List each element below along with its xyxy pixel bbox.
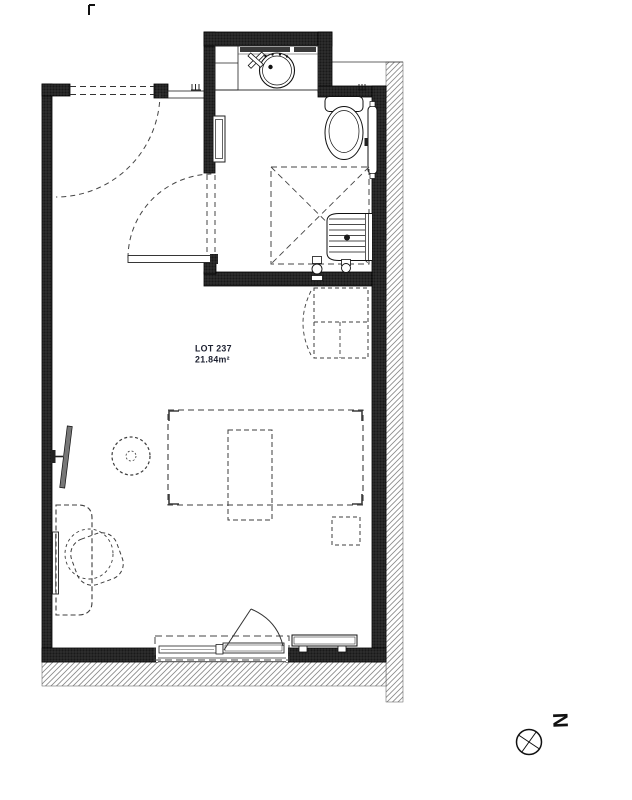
bed-outline: [168, 410, 363, 505]
bathroom-door-leaf: [128, 256, 212, 263]
toilet-icon: [325, 97, 363, 160]
shower-area: [271, 167, 372, 281]
washbasin-icon: [260, 53, 295, 88]
wardrobe-outline: [303, 288, 368, 358]
vanity-unit: [215, 46, 318, 90]
backsplash-strip: [240, 47, 290, 52]
overbed-table-outline: [228, 430, 272, 520]
bathroom-door-hinge: [210, 254, 218, 264]
wall-bottom-left: [42, 648, 158, 662]
wall-top-stub-left: [42, 84, 70, 96]
stool-outline: [112, 437, 150, 475]
entry-opening-dashes: [70, 87, 154, 95]
wall-top-light-segment: [168, 91, 208, 98]
wall-alcove-right: [318, 32, 332, 92]
backsplash-strip: [294, 47, 316, 52]
desk-outline: [56, 505, 92, 615]
floor-plan-page: LOT 237 21.84m² N: [0, 0, 632, 800]
bedside-table-outline: [332, 517, 360, 545]
wall-alcove-top: [204, 32, 332, 46]
area-label: 21.84m²: [195, 355, 230, 365]
north-arrow-label: N: [548, 712, 572, 728]
bathroom-door-swing-arc: [128, 174, 213, 258]
wall-top-stub-mid: [154, 84, 168, 98]
entry-door: [56, 87, 160, 198]
wall-left: [42, 84, 52, 662]
window-casement-leaf: [223, 643, 284, 653]
wall-bathroom-bottom: [204, 272, 372, 286]
desk-chair-outline: [65, 528, 128, 590]
floor-plan-svg: LOT 237 21.84m² N: [0, 0, 632, 800]
window-unit: [155, 609, 289, 662]
window-mullion: [216, 645, 223, 655]
entry-door-swing-arc: [56, 93, 160, 197]
north-compass-icon: N: [517, 712, 572, 754]
lot-annotation: LOT 237 21.84m²: [195, 344, 232, 365]
electrical-panel-icon: [213, 116, 225, 162]
bathroom-door: [128, 174, 218, 264]
shower-bench-icon: [327, 214, 372, 261]
bathroom-door-jamb-dashes: [207, 175, 215, 255]
lot-label: LOT 237: [195, 344, 232, 354]
tv-icon: [52, 426, 73, 488]
